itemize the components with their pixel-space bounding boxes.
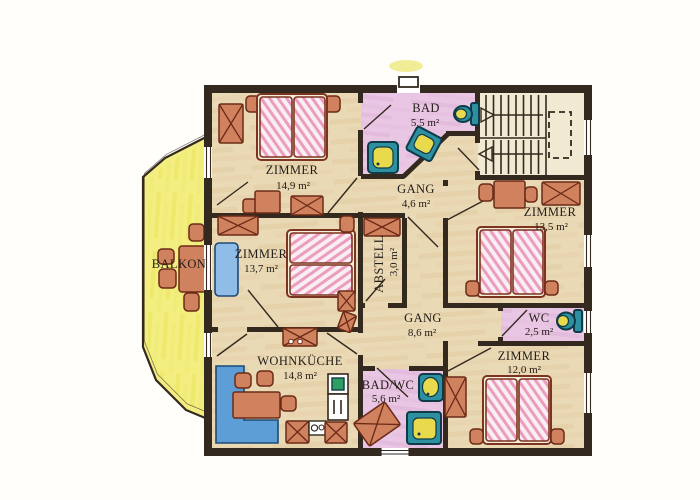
toilet-icon	[558, 316, 569, 327]
balcony-chair-icon	[159, 269, 176, 288]
room-name: BAD	[412, 101, 440, 115]
window-bottom	[381, 448, 409, 456]
kitchen-table-icon	[233, 392, 280, 418]
room-name: BAD/WC	[362, 378, 414, 392]
room-balkon	[143, 132, 211, 420]
room-name: GANG	[397, 182, 435, 196]
wardrobe-icon	[542, 182, 580, 205]
table-icon	[255, 191, 280, 213]
wardrobe-icon	[445, 377, 466, 417]
double-bed-icon	[287, 230, 355, 297]
room-area: 13,5 m²	[534, 221, 569, 233]
room-name: ABSTELL	[372, 235, 386, 293]
chair-icon	[235, 373, 251, 388]
chair-icon	[243, 199, 256, 213]
balcony-chair-icon	[184, 293, 199, 311]
window-left-3	[204, 333, 212, 357]
double-bed-icon	[477, 227, 545, 297]
room-area: 5,6 m²	[372, 393, 401, 405]
nightstand-icon	[340, 216, 354, 232]
nightstand-icon	[551, 429, 564, 444]
room-name: ZIMMER	[266, 163, 319, 177]
pencil-smudge	[389, 60, 423, 72]
double-bed-icon	[257, 94, 327, 160]
room-area: 4,6 m²	[402, 198, 431, 210]
wc-fixtures	[557, 310, 582, 332]
room-area: 14,8 m²	[283, 370, 318, 382]
wardrobe-icon	[219, 104, 243, 143]
room-area: 13,7 m²	[244, 263, 279, 275]
room-name: GANG	[404, 311, 442, 325]
room-name: WOHNKÜCHE	[257, 354, 343, 368]
window-right-2	[584, 235, 592, 267]
room-name: ZIMMER	[524, 205, 577, 219]
room-area: 5,5 m²	[411, 117, 440, 129]
kitchen-cupboard-icon	[328, 394, 348, 420]
chair-icon	[479, 184, 493, 201]
room-area: 12,0 m²	[507, 364, 542, 376]
label-balkon: BALKON	[152, 257, 206, 271]
wardrobe-icon	[218, 216, 258, 235]
chimney-notch	[397, 77, 420, 93]
fridge-icon	[328, 374, 348, 394]
abstell-shelf-icon	[364, 218, 400, 236]
double-bed-icon	[483, 376, 551, 444]
nightstand-icon	[466, 281, 479, 296]
room-area: 8,6 m²	[408, 327, 437, 339]
chair-icon	[525, 187, 537, 202]
chair-icon	[257, 371, 273, 386]
balcony-chair-icon	[189, 224, 204, 241]
room-name: BALKON	[152, 257, 206, 271]
window-left-1	[204, 147, 212, 178]
floor-plan-page: ZIMMER 14,9 m² BAD 5,5 m² GANG 4,6 m² ZI…	[0, 0, 700, 500]
sink-icon	[419, 374, 443, 401]
room-area: 2,5 m²	[525, 326, 554, 338]
chest-icon	[291, 196, 323, 215]
window-right-1	[584, 120, 592, 155]
chair-icon	[281, 396, 296, 411]
floor-plan-drawing: ZIMMER 14,9 m² BAD 5,5 m² GANG 4,6 m² ZI…	[0, 0, 700, 500]
shower-icon	[407, 412, 441, 444]
nightstand-icon	[470, 429, 483, 444]
chest-icon	[338, 291, 355, 311]
stove-icon	[283, 328, 317, 346]
nightstand-icon	[545, 281, 558, 295]
room-area: 14,9 m²	[276, 180, 311, 192]
room-name: WC	[529, 311, 550, 325]
window-right-3	[584, 311, 592, 333]
window-right-4	[584, 373, 592, 413]
table-icon	[494, 181, 525, 208]
room-name: ZIMMER	[235, 247, 288, 261]
room-area: 3,0 m²	[388, 247, 400, 276]
sink-icon	[368, 142, 398, 173]
room-name: ZIMMER	[498, 349, 551, 363]
